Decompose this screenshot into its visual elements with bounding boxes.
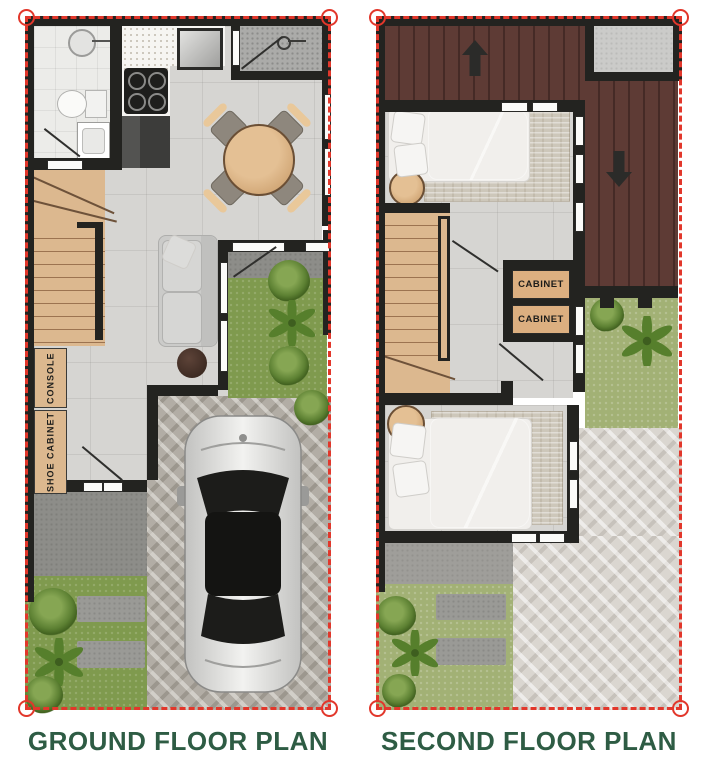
concrete-ledge xyxy=(594,26,673,72)
palm-plant xyxy=(622,316,672,366)
hall-window xyxy=(575,116,584,146)
bedroom2-door-panel xyxy=(539,533,565,543)
cabinet-1-label: CABINET xyxy=(518,279,564,290)
porch-slab xyxy=(34,492,147,576)
wall xyxy=(110,26,122,170)
lot-corner-circle xyxy=(18,9,35,26)
hall-door-threshold xyxy=(103,482,123,492)
kitchen-sink xyxy=(177,28,223,70)
toilet-tank xyxy=(85,90,107,118)
stepping-stone xyxy=(77,596,145,622)
sofa-backrest xyxy=(201,236,217,346)
bush-plant xyxy=(294,390,330,426)
lot-corner-circle xyxy=(321,9,338,26)
second-floor-title: SECOND FLOOR PLAN xyxy=(376,726,682,757)
front-door-threshold xyxy=(232,242,285,252)
bush-plant xyxy=(269,346,309,386)
stepping-stone xyxy=(436,638,506,665)
bush-plant xyxy=(29,588,77,636)
wall xyxy=(231,71,331,80)
living-window xyxy=(220,320,228,372)
dining-window xyxy=(324,148,331,196)
driveway-below xyxy=(572,428,682,536)
stepping-stone xyxy=(77,641,145,668)
porch-below xyxy=(385,543,513,584)
bedroom2-window xyxy=(569,479,578,509)
stairs-down-arrow xyxy=(606,151,632,187)
stepping-stone xyxy=(436,594,506,620)
wall xyxy=(501,381,513,405)
lot-corner-circle xyxy=(672,700,689,717)
wall xyxy=(381,203,450,213)
bedroom1-pillow xyxy=(390,110,426,146)
deck-post xyxy=(638,298,652,308)
stair-railing xyxy=(77,222,103,228)
cabinet-1: CABINET xyxy=(512,270,570,299)
stove-burner xyxy=(148,72,166,90)
bedroom2-door-panel xyxy=(511,533,537,543)
palm-plant xyxy=(269,300,315,346)
bathroom-door-leaf xyxy=(47,160,83,170)
hall-window xyxy=(575,154,584,184)
shoe-cabinet-label: SHOE CABINET xyxy=(46,412,56,492)
console-cabinet: CONSOLE xyxy=(34,348,67,408)
stove-burner xyxy=(128,72,146,90)
dining-table xyxy=(223,124,295,196)
kitchen-base-cabinet-dark xyxy=(140,116,170,168)
dining-window xyxy=(324,94,331,140)
hall-window xyxy=(575,202,584,232)
second-floor-plan: CABINET CABINET xyxy=(376,16,682,710)
ground-floor-title: GROUND FLOOR PLAN xyxy=(25,726,331,757)
wash-basin xyxy=(68,29,96,57)
deck-post xyxy=(600,298,614,308)
lot-corner-circle xyxy=(369,700,386,717)
driveway-below xyxy=(513,536,682,710)
bedroom2-pillow xyxy=(392,460,430,498)
railing-cap xyxy=(441,219,447,358)
cabinet-2: CABINET xyxy=(512,305,570,334)
service-door-leaf xyxy=(232,30,240,66)
bedroom1-pillow xyxy=(393,142,429,178)
stair-railing xyxy=(438,216,450,361)
kitchen-base-cabinet xyxy=(122,116,170,168)
bush-plant xyxy=(382,674,416,708)
lot-corner-circle xyxy=(321,700,338,717)
wall xyxy=(585,286,678,298)
wall xyxy=(25,16,34,602)
bedroom1-window xyxy=(532,102,558,112)
winder-line xyxy=(31,199,117,222)
wall xyxy=(376,16,385,592)
floor-plan-canvas: CONSOLE SHOE CABINET xyxy=(0,0,705,771)
vanity-sink xyxy=(77,122,110,160)
vanity-basin xyxy=(82,128,105,154)
winder-line xyxy=(31,176,114,214)
bedroom2-window xyxy=(569,441,578,471)
faucet-arm xyxy=(288,40,306,42)
basin-faucet xyxy=(92,40,110,42)
console-label: CONSOLE xyxy=(46,352,56,404)
toilet-bowl xyxy=(57,90,87,118)
lot-corner-circle xyxy=(369,9,386,26)
bedroom1-window xyxy=(501,102,528,112)
ottoman xyxy=(177,348,207,378)
stair-winder xyxy=(34,170,105,226)
bedroom2-pillow xyxy=(389,422,427,460)
lot-corner-circle xyxy=(672,9,689,26)
bedroom1-duvet xyxy=(428,108,528,180)
bush-plant xyxy=(268,260,310,302)
wall xyxy=(376,16,682,26)
bedroom2-duvet xyxy=(430,418,530,528)
wall xyxy=(567,405,579,543)
sink-drain xyxy=(194,41,203,50)
stair-railing xyxy=(95,222,103,340)
stove xyxy=(124,68,168,114)
palm-plant xyxy=(392,630,438,676)
cabinet-2-label: CABINET xyxy=(518,314,564,325)
front-window xyxy=(305,242,330,252)
sofa xyxy=(158,235,218,347)
stove-burner xyxy=(128,93,146,111)
wall xyxy=(25,16,331,26)
hall-window xyxy=(575,344,584,374)
lot-corner-circle xyxy=(18,700,35,717)
shoe-cabinet: SHOE CABINET xyxy=(34,410,67,494)
stair-winder xyxy=(381,358,450,393)
wall xyxy=(585,72,682,81)
wall xyxy=(147,385,158,480)
hall-door-threshold xyxy=(83,482,103,492)
stairs-up-arrow xyxy=(462,40,488,76)
living-window xyxy=(220,262,228,314)
sofa-cushion xyxy=(162,292,202,344)
wall xyxy=(376,393,513,405)
car-top-view xyxy=(175,412,311,696)
hall-window xyxy=(575,306,584,336)
ground-floor-plan: CONSOLE SHOE CABINET xyxy=(25,16,331,710)
stove-burner xyxy=(148,93,166,111)
